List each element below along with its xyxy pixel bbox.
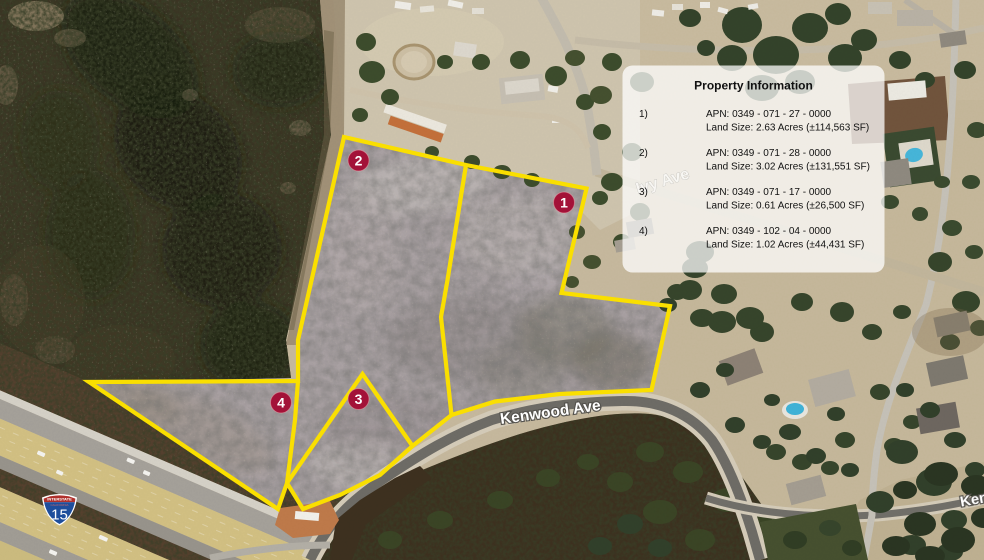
svg-text:INTERSTATE: INTERSTATE xyxy=(47,497,72,502)
svg-text:1): 1) xyxy=(639,109,648,120)
svg-text:4): 4) xyxy=(639,226,648,237)
svg-text:2): 2) xyxy=(639,148,648,159)
svg-text:2: 2 xyxy=(355,153,363,169)
svg-text:1: 1 xyxy=(560,195,568,211)
svg-text:Land Size: 3.02 Acres (±131,55: Land Size: 3.02 Acres (±131,551 SF) xyxy=(706,162,870,173)
svg-text:Land Size: 2.63 Acres (±114,56: Land Size: 2.63 Acres (±114,563 SF) xyxy=(706,123,869,134)
svg-text:APN: 0349 - 102 - 04 - 0000: APN: 0349 - 102 - 04 - 0000 xyxy=(706,226,832,237)
svg-text:Property Information: Property Information xyxy=(694,79,813,93)
svg-text:3: 3 xyxy=(355,391,363,407)
svg-text:APN: 0349 - 071 - 27 - 0000: APN: 0349 - 071 - 27 - 0000 xyxy=(706,109,832,120)
svg-text:3): 3) xyxy=(639,187,648,198)
svg-text:4: 4 xyxy=(277,395,285,411)
svg-text:Land Size: 0.61 Acres (±26,500: Land Size: 0.61 Acres (±26,500 SF) xyxy=(706,201,864,212)
svg-text:APN: 0349 - 071 - 17 - 0000: APN: 0349 - 071 - 17 - 0000 xyxy=(706,187,832,198)
svg-text:APN: 0349 - 071 - 28 - 0000: APN: 0349 - 071 - 28 - 0000 xyxy=(706,148,832,159)
svg-text:Land Size: 1.02 Acres (±44,431: Land Size: 1.02 Acres (±44,431 SF) xyxy=(706,240,864,251)
